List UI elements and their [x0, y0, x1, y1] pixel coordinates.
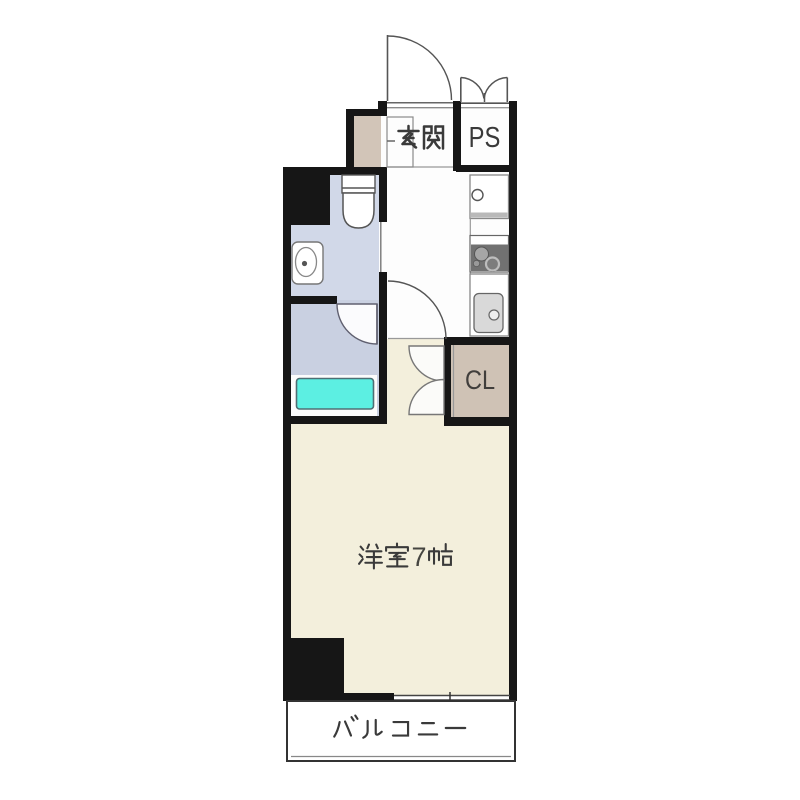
svg-text:7: 7: [411, 542, 426, 572]
svg-text:PS: PS: [469, 121, 501, 154]
svg-text:CL: CL: [465, 366, 495, 396]
